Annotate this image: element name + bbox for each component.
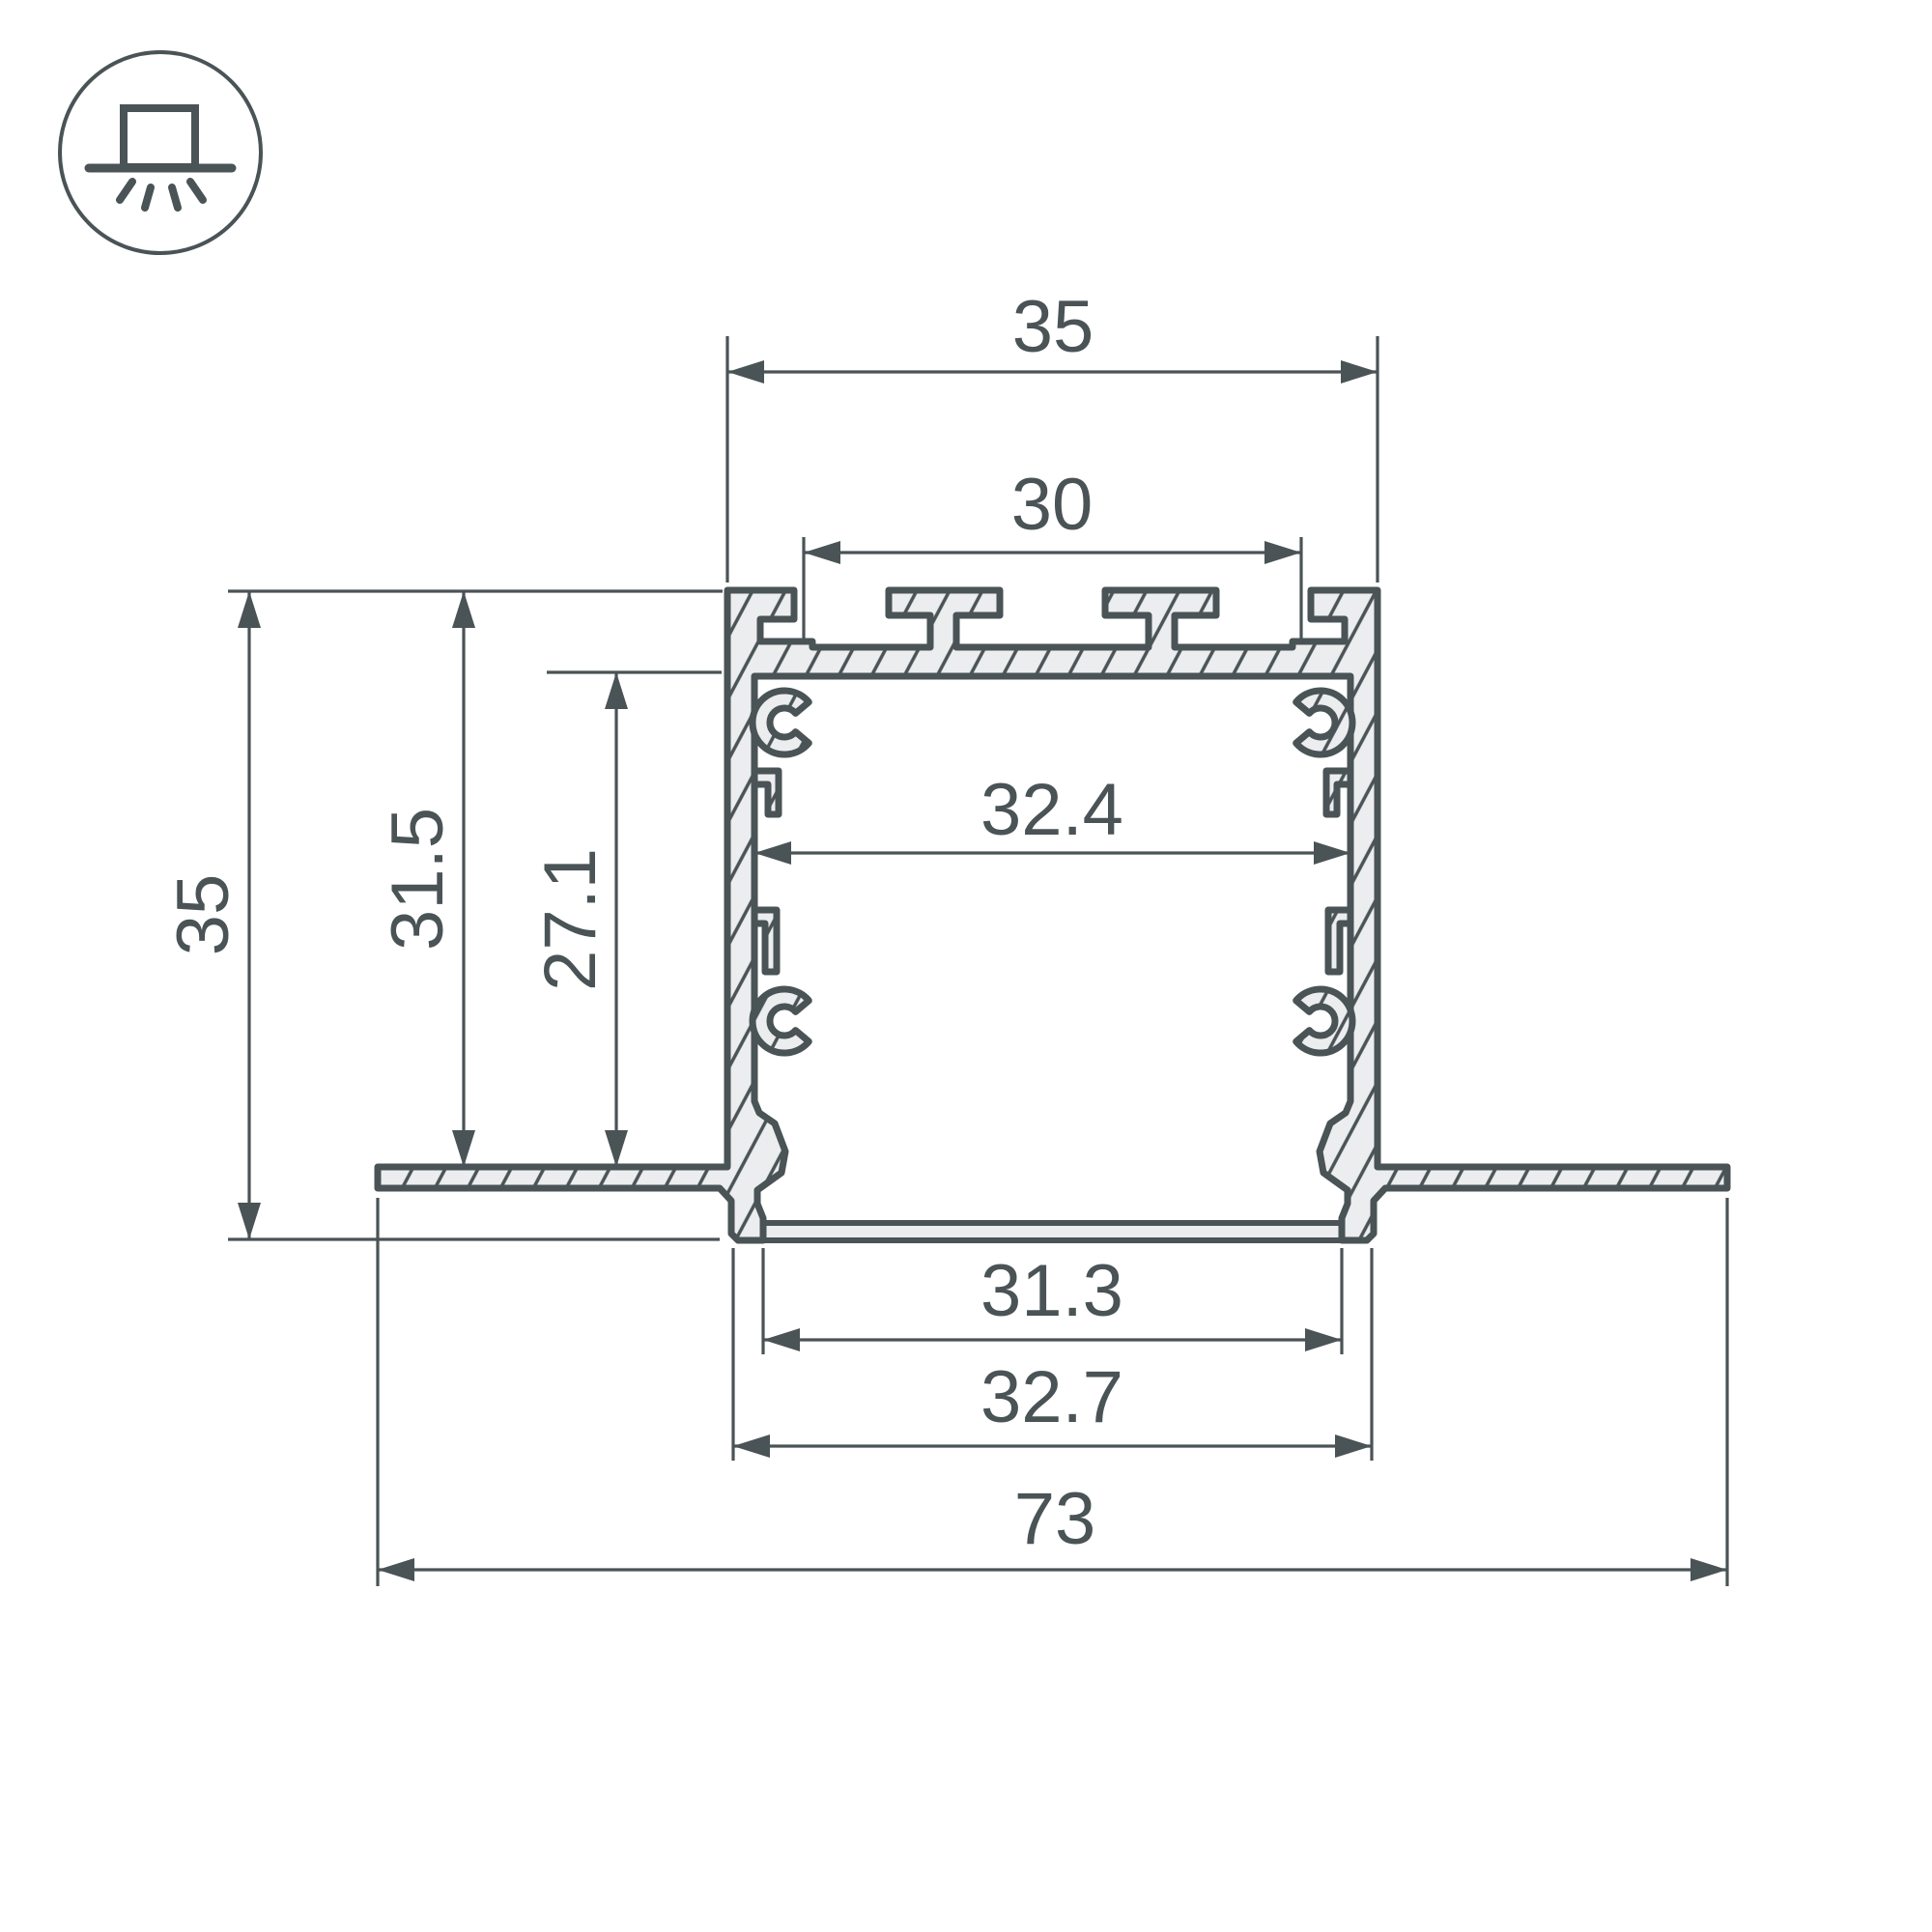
dim-top-inner-width-label: 30 [1011,464,1094,546]
dim-height-wall: 31.5 [377,591,475,1167]
dim-top-inner-width: 30 [804,464,1301,643]
diffuser-plate [745,1223,1360,1240]
screw-channel-left-bottom [753,989,809,1053]
clip-hook-right-upper [1326,771,1350,814]
icon-circle [60,52,261,253]
dim-inner-width: 32.4 [754,769,1350,865]
dim-top-width-label: 35 [1012,286,1094,368]
drawing-canvas: 35 30 32.4 35 [0,0,1932,1932]
recessed-mount-icon [60,52,261,253]
dim-overall-width-label: 73 [1014,1478,1096,1560]
screw-channel-left-top [753,691,809,754]
dim-height-wall-label: 31.5 [377,808,459,951]
clip-hook-left-upper [754,771,779,814]
screw-channel-right-top [1296,691,1352,754]
dim-height-inner: 27.1 [529,672,722,1167]
screw-channel-right-bottom [1296,989,1352,1053]
technical-drawing: 35 30 32.4 35 [0,0,1932,1932]
dim-inner-width-label: 32.4 [980,769,1123,851]
dim-bottom-width-label: 32.7 [980,1356,1123,1438]
dim-bottom-opening: 31.3 [763,1248,1342,1354]
dim-bottom-opening-label: 31.3 [980,1250,1123,1332]
dim-height-inner-label: 27.1 [529,848,611,991]
dim-height-total-label: 35 [162,874,244,956]
